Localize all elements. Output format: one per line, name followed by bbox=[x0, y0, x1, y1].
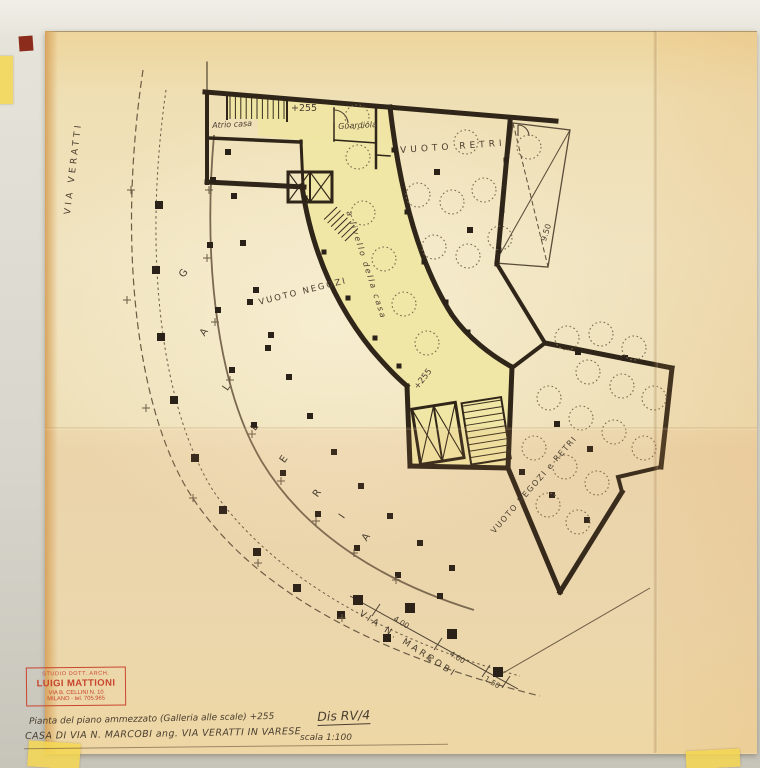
title-scale: scala 1:100 bbox=[300, 734, 352, 743]
vertical-crease bbox=[653, 31, 658, 753]
architect-stamp: STUDIO DOTT. ARCH. LUIGI MATTIONI VIA B.… bbox=[26, 666, 126, 706]
stamp-architect-name: LUIGI MATTIONI bbox=[29, 678, 123, 690]
fold-tint bbox=[658, 31, 757, 753]
tape-bottom-right bbox=[686, 749, 741, 768]
tape-bottom-left bbox=[27, 740, 81, 768]
stamp-studio-line: STUDIO DOTT. ARCH. bbox=[29, 671, 123, 678]
level-label-top: +255 bbox=[291, 104, 317, 114]
floor-plan-drawing bbox=[0, 0, 760, 768]
stamp-city-tel: MILANO - tel. 705.965 bbox=[29, 696, 123, 703]
red-corner-mark bbox=[18, 36, 33, 52]
drawing-number: Dis RV/4 bbox=[317, 709, 370, 725]
tape-top-left bbox=[0, 56, 13, 104]
lower-tint bbox=[45, 430, 757, 640]
scanned-drawing-photo: VIA VERATTI +255 Atrio casa Guardiola VU… bbox=[0, 0, 760, 768]
